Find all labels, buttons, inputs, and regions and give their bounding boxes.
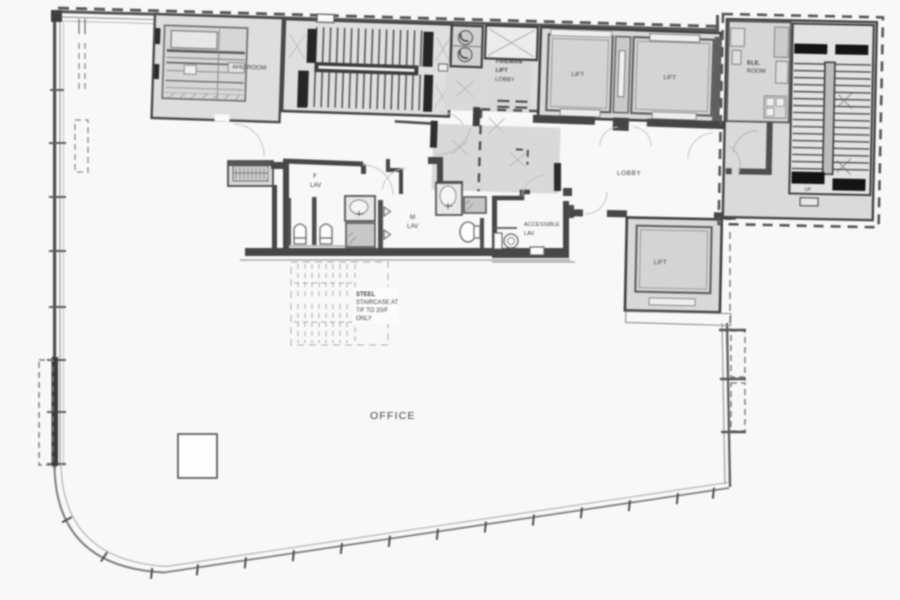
svg-text:ACCESSIBLE: ACCESSIBLE — [524, 222, 560, 228]
svg-text:LIFT: LIFT — [495, 68, 508, 74]
svg-text:ELE.: ELE. — [747, 61, 761, 67]
svg-text:AHU ROOM: AHU ROOM — [232, 64, 266, 72]
svg-text:LIFT: LIFT — [571, 71, 584, 78]
svg-text:LAV: LAV — [407, 223, 419, 230]
svg-text:LOBBY: LOBBY — [495, 77, 515, 84]
svg-text:7/F TO 20/F: 7/F TO 20/F — [356, 308, 388, 314]
svg-text:LIFT: LIFT — [654, 259, 667, 266]
svg-text:ONLY: ONLY — [356, 316, 372, 322]
svg-text:OFFICE: OFFICE — [370, 410, 416, 422]
svg-text:LOBBY: LOBBY — [617, 170, 641, 177]
svg-text:ROOM: ROOM — [747, 69, 766, 75]
svg-text:UP: UP — [804, 187, 812, 193]
svg-text:LAV: LAV — [524, 231, 535, 237]
svg-text:STEEL: STEEL — [356, 292, 376, 298]
svg-text:LAV: LAV — [310, 182, 322, 189]
svg-text:M: M — [410, 214, 415, 221]
svg-text:FIREMAN: FIREMAN — [496, 59, 523, 66]
svg-text:LIFT: LIFT — [663, 74, 676, 81]
svg-text:F: F — [313, 173, 317, 180]
svg-text:STAIRCASE AT: STAIRCASE AT — [356, 300, 398, 306]
